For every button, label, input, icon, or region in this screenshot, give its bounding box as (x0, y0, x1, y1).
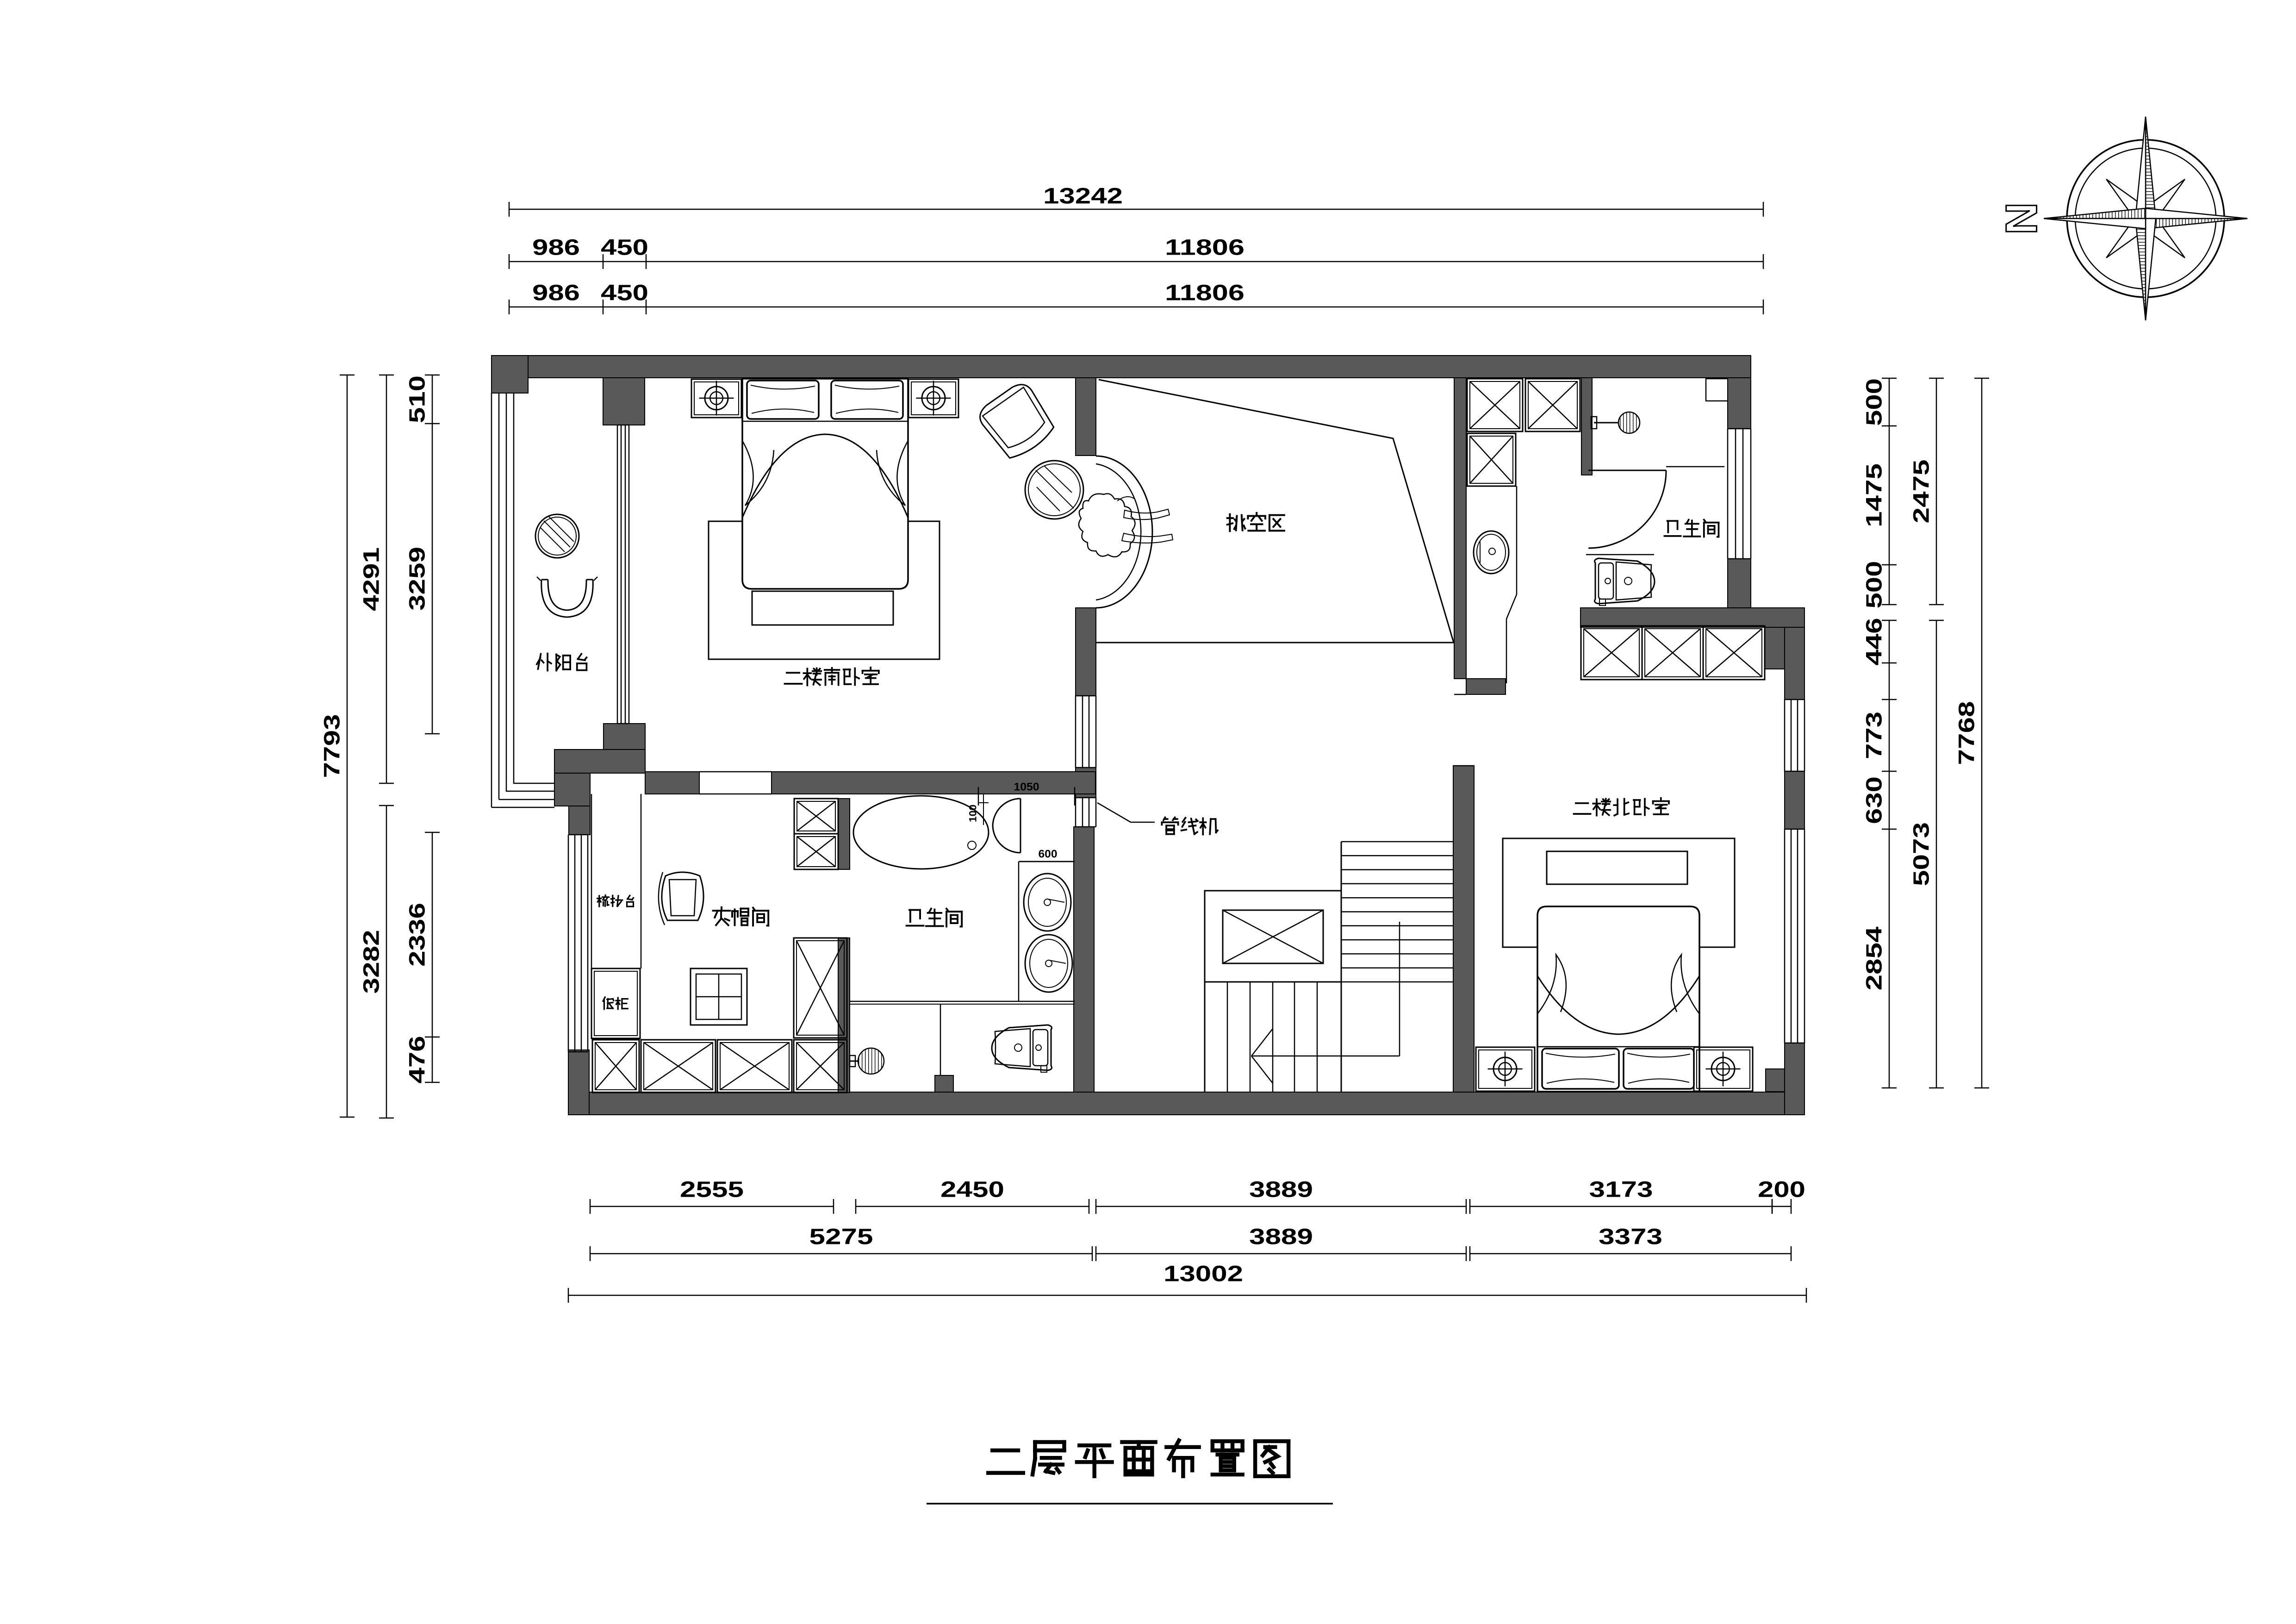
svg-text:11806: 11806 (1165, 281, 1244, 306)
svg-text:986: 986 (532, 236, 580, 260)
svg-text:773: 773 (1862, 712, 1887, 759)
svg-text:476: 476 (405, 1036, 430, 1084)
svg-text:600: 600 (1039, 848, 1058, 861)
svg-text:4291: 4291 (360, 547, 384, 611)
svg-text:2555: 2555 (680, 1178, 744, 1202)
svg-text:2854: 2854 (1862, 926, 1887, 990)
svg-text:3889: 3889 (1249, 1178, 1313, 1202)
svg-text:7768: 7768 (1955, 701, 1979, 765)
svg-text:N: N (1997, 202, 2047, 234)
svg-text:450: 450 (601, 281, 648, 306)
svg-text:1050: 1050 (1014, 781, 1039, 793)
svg-text:3282: 3282 (360, 930, 384, 994)
svg-text:3889: 3889 (1249, 1225, 1313, 1249)
svg-text:5275: 5275 (809, 1225, 873, 1249)
svg-text:500: 500 (1862, 378, 1887, 426)
svg-text:2450: 2450 (940, 1178, 1004, 1202)
svg-text:3173: 3173 (1589, 1178, 1653, 1202)
svg-text:986: 986 (532, 281, 580, 306)
svg-text:1475: 1475 (1862, 463, 1887, 527)
svg-text:3259: 3259 (405, 547, 430, 611)
svg-text:13002: 13002 (1164, 1262, 1243, 1287)
svg-text:13242: 13242 (1043, 184, 1123, 209)
svg-text:446: 446 (1862, 618, 1887, 666)
svg-text:11806: 11806 (1165, 236, 1244, 260)
svg-text:2336: 2336 (405, 903, 430, 967)
svg-text:450: 450 (601, 236, 648, 260)
svg-text:3373: 3373 (1599, 1225, 1662, 1249)
svg-text:630: 630 (1862, 776, 1887, 824)
svg-text:100: 100 (967, 805, 979, 822)
svg-text:5073: 5073 (1910, 822, 1934, 886)
svg-text:2475: 2475 (1910, 460, 1934, 524)
svg-text:510: 510 (405, 375, 430, 423)
svg-text:7793: 7793 (320, 714, 345, 778)
svg-text:500: 500 (1862, 561, 1887, 609)
svg-text:200: 200 (1758, 1178, 1805, 1202)
